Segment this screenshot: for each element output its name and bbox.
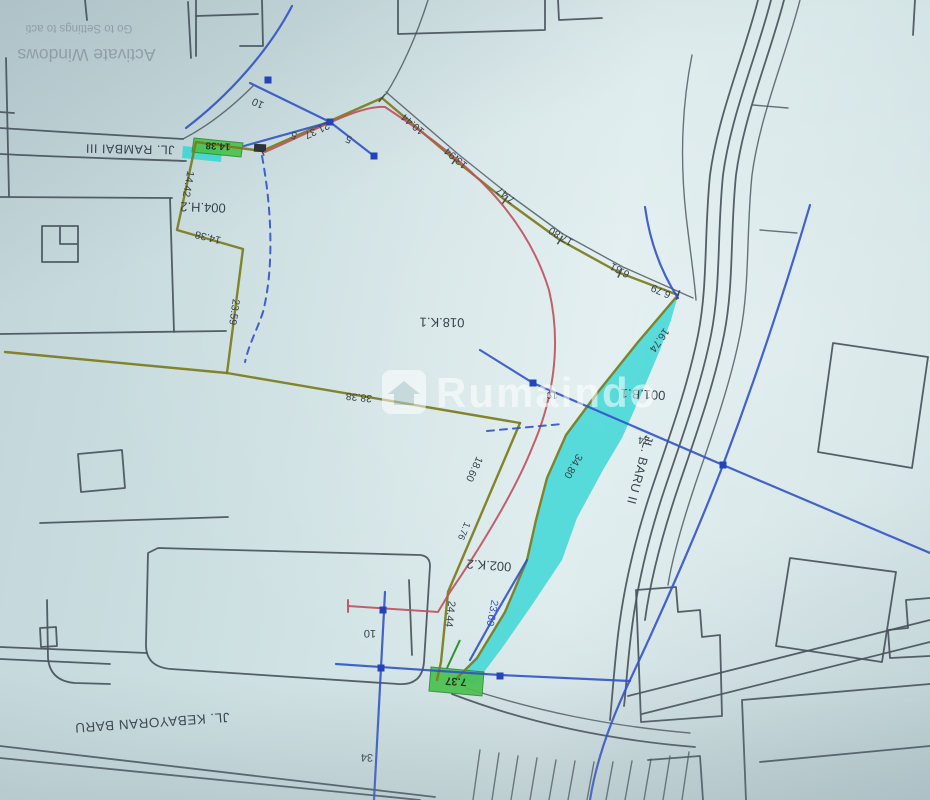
measure-label: 10 [364, 627, 376, 639]
parcel-line [196, 14, 258, 16]
parcel-line [386, 92, 693, 298]
red-boundary-line [265, 107, 555, 612]
measure-label: 23.59 [226, 298, 242, 326]
road-hatch-ticks [473, 750, 689, 800]
screen-photo: Go to Settings to acti Activate Windows [0, 0, 930, 800]
survey-node-marker [254, 144, 266, 153]
measure-label: 14.38 [194, 228, 223, 246]
building-outline [742, 684, 930, 800]
measure-label: 34 [361, 751, 373, 763]
creek-line [683, 55, 696, 300]
blue-vertical-bottom [374, 592, 385, 800]
building-outline [78, 450, 125, 492]
parcel-line [409, 580, 412, 655]
red-annotation-layer [265, 107, 555, 612]
parcel-line [386, 0, 428, 94]
measure-label: 5 [289, 128, 299, 141]
parcel-label-004H2: 004.H.2 [180, 199, 226, 216]
measure-label: 17.80 [547, 224, 576, 248]
building-outline [398, 0, 545, 34]
parcel-line [0, 58, 14, 196]
branch-road-lines [628, 620, 930, 714]
baru-road-line [668, 0, 800, 585]
parcel-line [0, 331, 226, 334]
measure-label: 24.44 [442, 600, 457, 628]
road-tick [753, 105, 797, 233]
measure-label-green-bottom: 7.37 [445, 674, 467, 687]
blue-long-curve-right [590, 205, 810, 800]
measure-label: 13.94 [442, 145, 470, 171]
watermark-text: Rumaindo [436, 369, 657, 416]
building-outline [776, 558, 896, 662]
parcel-line [240, 0, 263, 46]
measure-label: 7.47 [494, 184, 518, 206]
road-label-kebayoran: JL. KEBAYORAN BARU [74, 710, 230, 736]
blue-dashed-boundary [245, 156, 270, 362]
parcel-line [0, 197, 172, 198]
building-outline [888, 598, 930, 658]
measure-label: 10 [250, 95, 266, 111]
blue-curve-topleft [186, 6, 292, 128]
road-label-rambai: JL. RAMBAI III [85, 141, 174, 157]
blue-dashed-segment [487, 424, 562, 431]
measure-label: 21.37 [302, 119, 331, 141]
parcel-line [558, 0, 602, 20]
rambai-road-bend [183, 86, 253, 139]
parcel-label-002K2: 002.K.2 [466, 556, 512, 574]
parcel-label-018K1: 018.K.1 [419, 315, 464, 331]
green-edge-line [447, 640, 460, 668]
parcel-line [40, 517, 228, 523]
measure-label: 6.81 [608, 260, 632, 280]
parcel-line [188, 2, 191, 58]
watermark: Rumaindo [382, 369, 657, 416]
measure-label: 38.38 [345, 390, 373, 405]
building-outline [818, 343, 928, 468]
parcel-line [170, 198, 174, 332]
measure-label: 24 [638, 434, 651, 447]
measure-label-green-top: 14.38 [205, 139, 231, 151]
parcel-line [0, 647, 147, 664]
building-outline [636, 587, 722, 722]
building-outline [146, 548, 430, 684]
measure-label: 18.60 [463, 455, 485, 484]
cadastral-map-svg: JL. RAMBAI III JL. KEBAYORAN BARU JL. BA… [0, 0, 930, 800]
building-outline [42, 226, 78, 262]
measure-label: 14.42 [180, 170, 196, 198]
building-outline [648, 756, 703, 800]
parcel-line [85, 0, 87, 20]
parcel-line [913, 0, 915, 35]
